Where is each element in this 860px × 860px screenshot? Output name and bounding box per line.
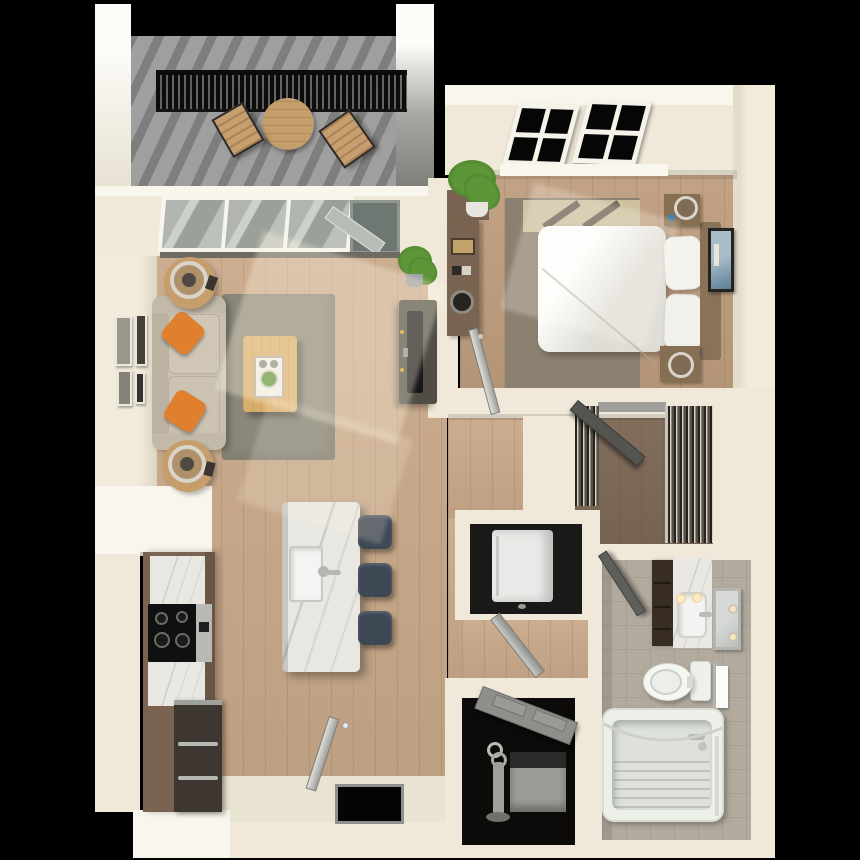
- sunlight-patch-bedroom: [501, 183, 680, 347]
- sunlight-patch-living-lower: [237, 395, 413, 544]
- apartment-floorplan-render: [0, 0, 860, 860]
- sunlight-patch-living-upper: [215, 231, 445, 444]
- sunlight-overlays: [0, 0, 860, 860]
